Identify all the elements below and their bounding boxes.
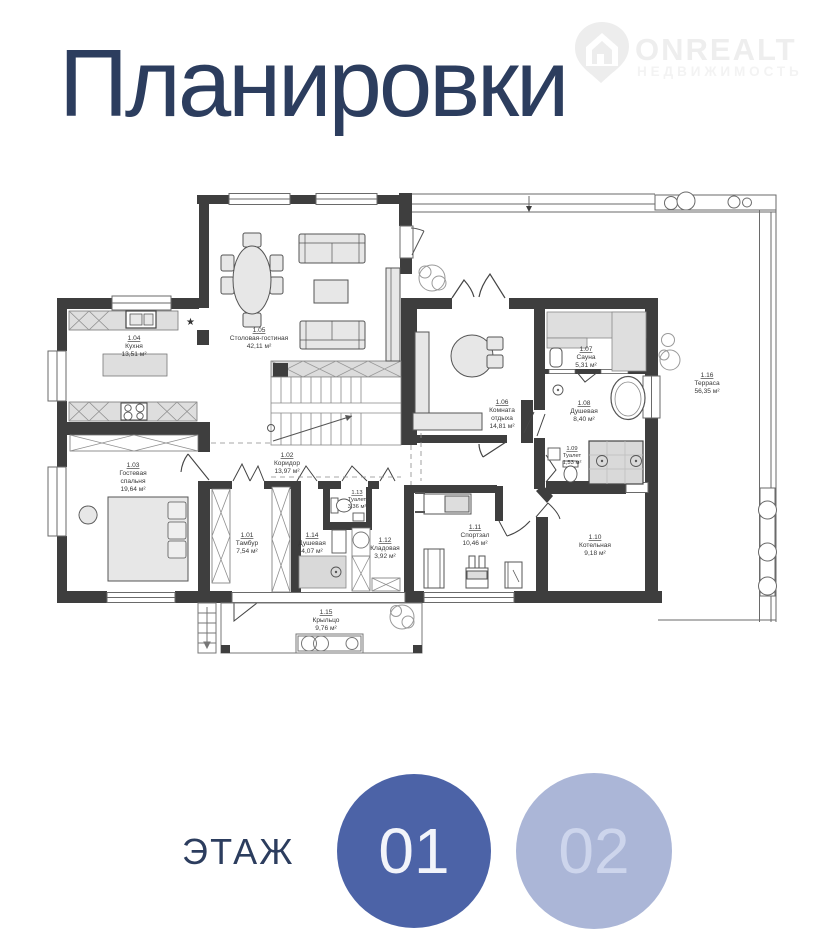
svg-text:1.14: 1.14 [306,532,319,539]
svg-text:42,11 м²: 42,11 м² [247,343,272,350]
svg-text:5,31 м²: 5,31 м² [575,362,597,369]
svg-text:Кухня: Кухня [125,343,143,350]
svg-text:13,51 м²: 13,51 м² [121,351,147,358]
svg-text:7,54 м²: 7,54 м² [236,548,258,555]
svg-text:1.03: 1.03 [127,462,140,469]
svg-text:Туалет: Туалет [348,497,367,503]
svg-text:Гостевая: Гостевая [119,470,147,477]
svg-text:1.08: 1.08 [578,400,591,407]
svg-text:Душевая: Душевая [570,408,598,415]
svg-text:8,40 м²: 8,40 м² [573,416,595,423]
svg-text:Коридор: Коридор [274,460,300,467]
svg-text:1.05: 1.05 [253,327,266,334]
svg-text:отдыха: отдыха [491,415,513,422]
svg-text:19,64 м²: 19,64 м² [120,486,146,493]
svg-text:★: ★ [186,317,195,328]
svg-text:1.01: 1.01 [241,532,254,539]
svg-text:Сауна: Сауна [576,354,595,361]
svg-text:1.04: 1.04 [128,335,141,342]
svg-text:Туалет: Туалет [563,453,582,459]
svg-text:1.06: 1.06 [496,399,509,406]
svg-text:9,76 м²: 9,76 м² [315,625,337,632]
svg-text:Спортзал: Спортзал [460,532,489,539]
svg-text:1.13: 1.13 [351,490,362,496]
svg-text:3,36 м²: 3,36 м² [348,504,367,510]
svg-text:13,97 м²: 13,97 м² [274,468,300,475]
svg-text:1.11: 1.11 [469,524,482,531]
svg-text:4,07 м²: 4,07 м² [301,548,323,555]
svg-text:1.02: 1.02 [281,452,294,459]
svg-text:1.07: 1.07 [580,346,593,353]
svg-text:Душевая: Душевая [298,540,326,547]
svg-text:1.15: 1.15 [320,609,333,616]
svg-text:1.10: 1.10 [589,534,602,541]
svg-text:3,92 м²: 3,92 м² [374,553,396,560]
svg-text:спальня: спальня [120,478,145,485]
svg-text:Тамбур: Тамбур [236,539,259,547]
svg-text:56,35 м²: 56,35 м² [694,388,720,395]
svg-text:1.09: 1.09 [566,446,577,452]
svg-text:Комната: Комната [489,407,515,414]
svg-text:1,53 м²: 1,53 м² [563,460,582,466]
svg-text:14,81 м²: 14,81 м² [489,423,515,430]
svg-text:Кладовая: Кладовая [370,545,400,552]
svg-text:1.12: 1.12 [379,537,392,544]
svg-text:Крыльцо: Крыльцо [313,617,340,624]
svg-text:Терраса: Терраса [694,380,720,387]
svg-text:1.16: 1.16 [701,372,714,379]
svg-text:Котельная: Котельная [579,542,611,549]
svg-text:10,46 м²: 10,46 м² [462,540,488,547]
svg-text:Столовая-гостиная: Столовая-гостиная [230,335,289,342]
svg-text:9,18 м²: 9,18 м² [584,550,606,557]
